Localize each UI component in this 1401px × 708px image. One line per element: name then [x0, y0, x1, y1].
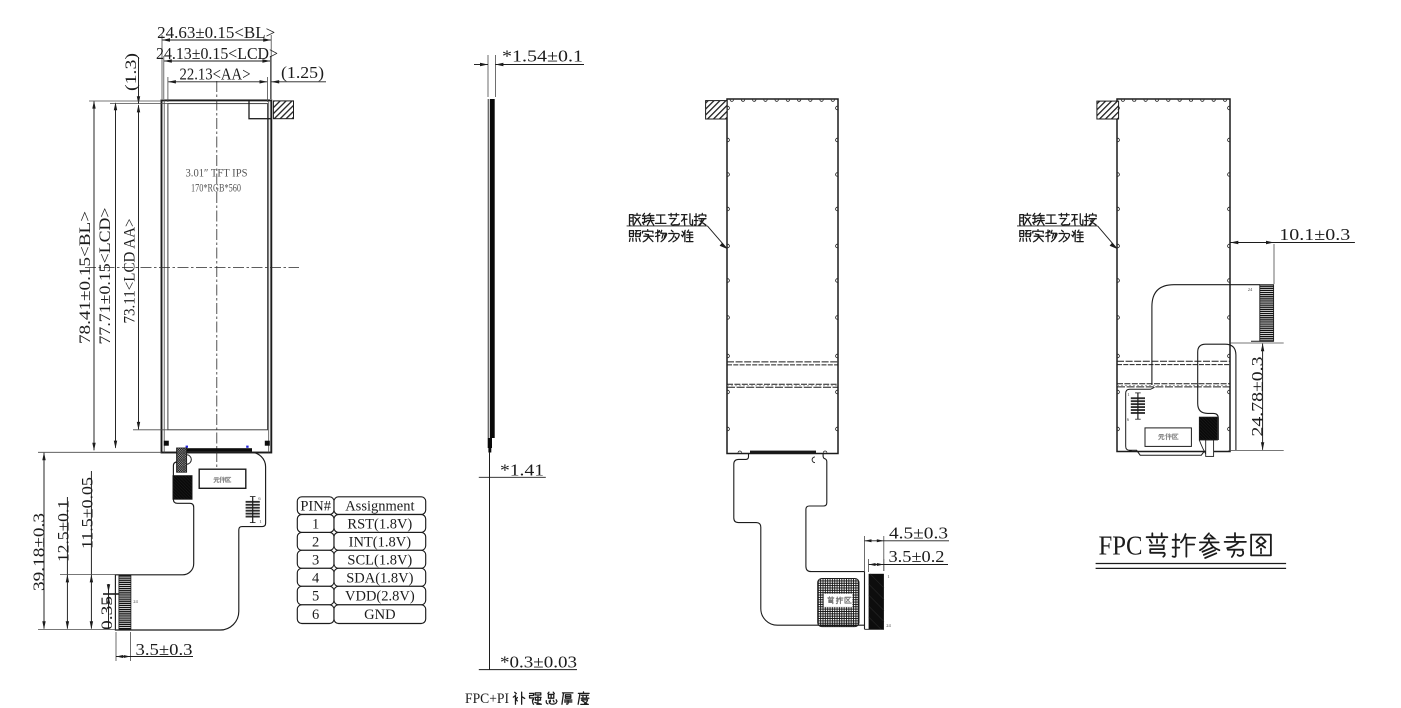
svg-text:INT(1.8V): INT(1.8V): [349, 534, 412, 550]
svg-text:77.71±0.15<LCD>: 77.71±0.15<LCD>: [97, 208, 114, 345]
svg-text:24: 24: [886, 623, 891, 628]
svg-text:78.41±0.15<BL>: 78.41±0.15<BL>: [77, 211, 94, 344]
svg-text:(1.25): (1.25): [281, 63, 324, 82]
svg-text:6: 6: [258, 496, 261, 501]
svg-text:1: 1: [887, 574, 889, 579]
svg-text:*1.54±0.1: *1.54±0.1: [502, 47, 583, 66]
svg-text:SCL(1.8V): SCL(1.8V): [347, 552, 412, 568]
svg-text:RST(1.8V): RST(1.8V): [347, 516, 412, 532]
svg-text:24.63±0.15<BL>: 24.63±0.15<BL>: [157, 23, 275, 42]
svg-text:*0.3±0.03: *0.3±0.03: [500, 653, 577, 672]
svg-text:1: 1: [312, 516, 319, 532]
svg-text:FPC: FPC: [1099, 531, 1143, 561]
svg-text:24.13±0.15<LCD>: 24.13±0.15<LCD>: [156, 44, 278, 63]
svg-text:1: 1: [1127, 392, 1129, 397]
svg-text:6: 6: [312, 607, 319, 623]
svg-text:PIN#: PIN#: [300, 499, 331, 515]
svg-text:1: 1: [259, 519, 261, 524]
svg-text:*1.41: *1.41: [500, 461, 544, 480]
svg-text:GND: GND: [364, 607, 395, 623]
svg-text:3.5±0.2: 3.5±0.2: [889, 547, 945, 566]
svg-text:3: 3: [312, 552, 319, 568]
svg-text:39.18±0.3: 39.18±0.3: [31, 513, 48, 591]
svg-text:2: 2: [312, 534, 319, 550]
svg-text:VDD(2.8V): VDD(2.8V): [345, 589, 415, 605]
svg-text:FPC+PI: FPC+PI: [465, 691, 509, 707]
svg-text:24: 24: [1248, 287, 1253, 292]
svg-text:(1.3): (1.3): [123, 53, 140, 91]
svg-text:10.1±0.3: 10.1±0.3: [1279, 225, 1350, 244]
svg-text:73.11<LCD AA>: 73.11<LCD AA>: [121, 219, 138, 324]
svg-text:3.01″ TFT IPS: 3.01″ TFT IPS: [186, 168, 248, 180]
svg-text:24: 24: [133, 599, 138, 604]
svg-text:3.5±0.3: 3.5±0.3: [136, 640, 193, 659]
svg-text:5: 5: [312, 589, 319, 605]
svg-text:12.5±0.1: 12.5±0.1: [56, 500, 73, 562]
svg-text:4.5±0.3: 4.5±0.3: [889, 523, 948, 542]
svg-text:170*RGB*560: 170*RGB*560: [191, 183, 241, 195]
svg-text:6: 6: [1127, 417, 1130, 422]
svg-text:4: 4: [312, 570, 320, 586]
svg-text:SDA(1.8V): SDA(1.8V): [346, 570, 413, 586]
svg-text:24.78±0.3: 24.78±0.3: [1250, 357, 1267, 437]
svg-text:Assignment: Assignment: [345, 499, 414, 515]
svg-text:22.13<AA>: 22.13<AA>: [180, 65, 251, 84]
svg-text:0.35: 0.35: [99, 596, 116, 630]
svg-text:11.5±0.05: 11.5±0.05: [80, 477, 97, 549]
